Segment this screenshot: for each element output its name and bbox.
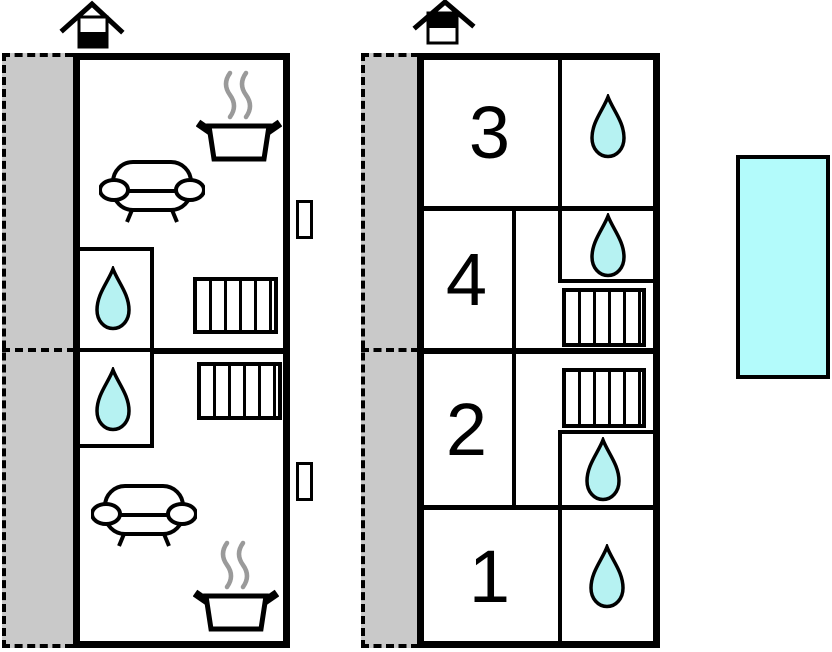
pool xyxy=(736,155,830,379)
water-drop-icon xyxy=(93,266,133,332)
water-drop-icon xyxy=(93,367,133,433)
chimney-icon xyxy=(61,1,125,53)
wall xyxy=(512,211,516,348)
sofa-icon xyxy=(91,484,197,548)
room-label-2: 2 xyxy=(421,354,512,505)
terrace-left-divider-dashed-line xyxy=(2,348,75,352)
radiator-icon xyxy=(197,362,282,420)
radiator-icon xyxy=(562,368,646,428)
wall xyxy=(558,510,562,646)
water-drop-icon xyxy=(588,213,628,279)
wall xyxy=(558,211,562,283)
wall xyxy=(558,432,562,507)
chimney-icon xyxy=(412,0,476,52)
wall xyxy=(558,279,653,283)
room-label-1: 1 xyxy=(421,510,558,644)
window-icon xyxy=(296,462,313,501)
water-drop-icon xyxy=(587,544,627,610)
wall xyxy=(512,354,516,505)
radiator-icon xyxy=(562,288,646,347)
sofa-icon xyxy=(99,160,205,224)
floor-plan: 3 4 2 1 xyxy=(0,0,832,652)
terrace-right-divider-dashed-line xyxy=(361,348,419,352)
radiator-icon xyxy=(193,277,278,334)
wall xyxy=(558,59,562,206)
water-drop-icon xyxy=(588,94,628,160)
room-label-3: 3 xyxy=(421,59,558,206)
stove-pot-icon xyxy=(193,540,279,632)
wall xyxy=(558,430,653,434)
stove-pot-icon xyxy=(196,70,282,162)
water-drop-icon xyxy=(583,437,623,503)
room-label-4: 4 xyxy=(421,211,512,348)
window-icon xyxy=(296,200,313,239)
